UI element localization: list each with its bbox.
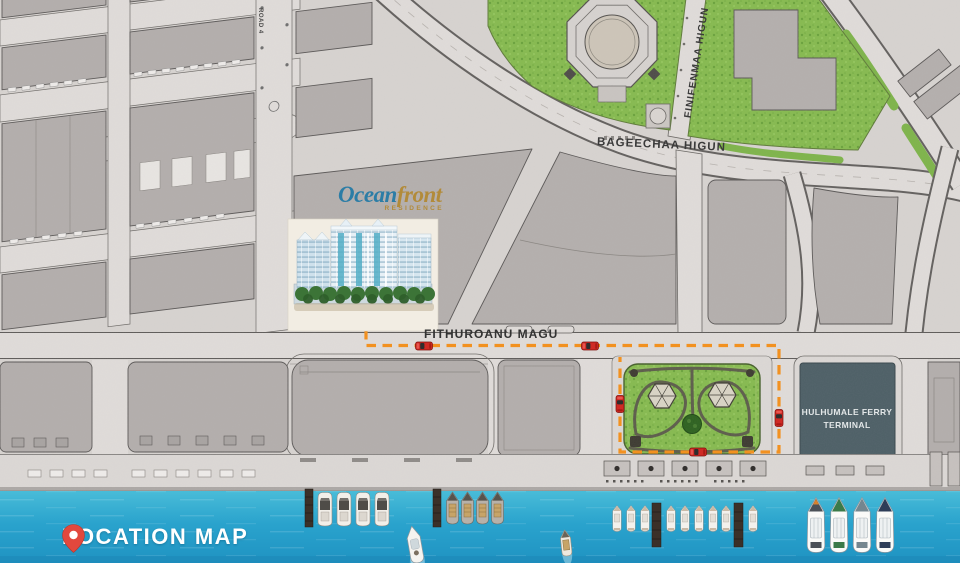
car [582,342,599,350]
car [690,448,707,456]
car [416,342,433,350]
land-texture [0,0,960,491]
car [775,410,783,427]
location-map: ROAD 4 BAGEECHAA HIGUN FINIFENMAA HIGUN … [0,0,960,563]
map-canvas [0,0,960,563]
building-render [288,219,438,331]
car [616,396,624,413]
